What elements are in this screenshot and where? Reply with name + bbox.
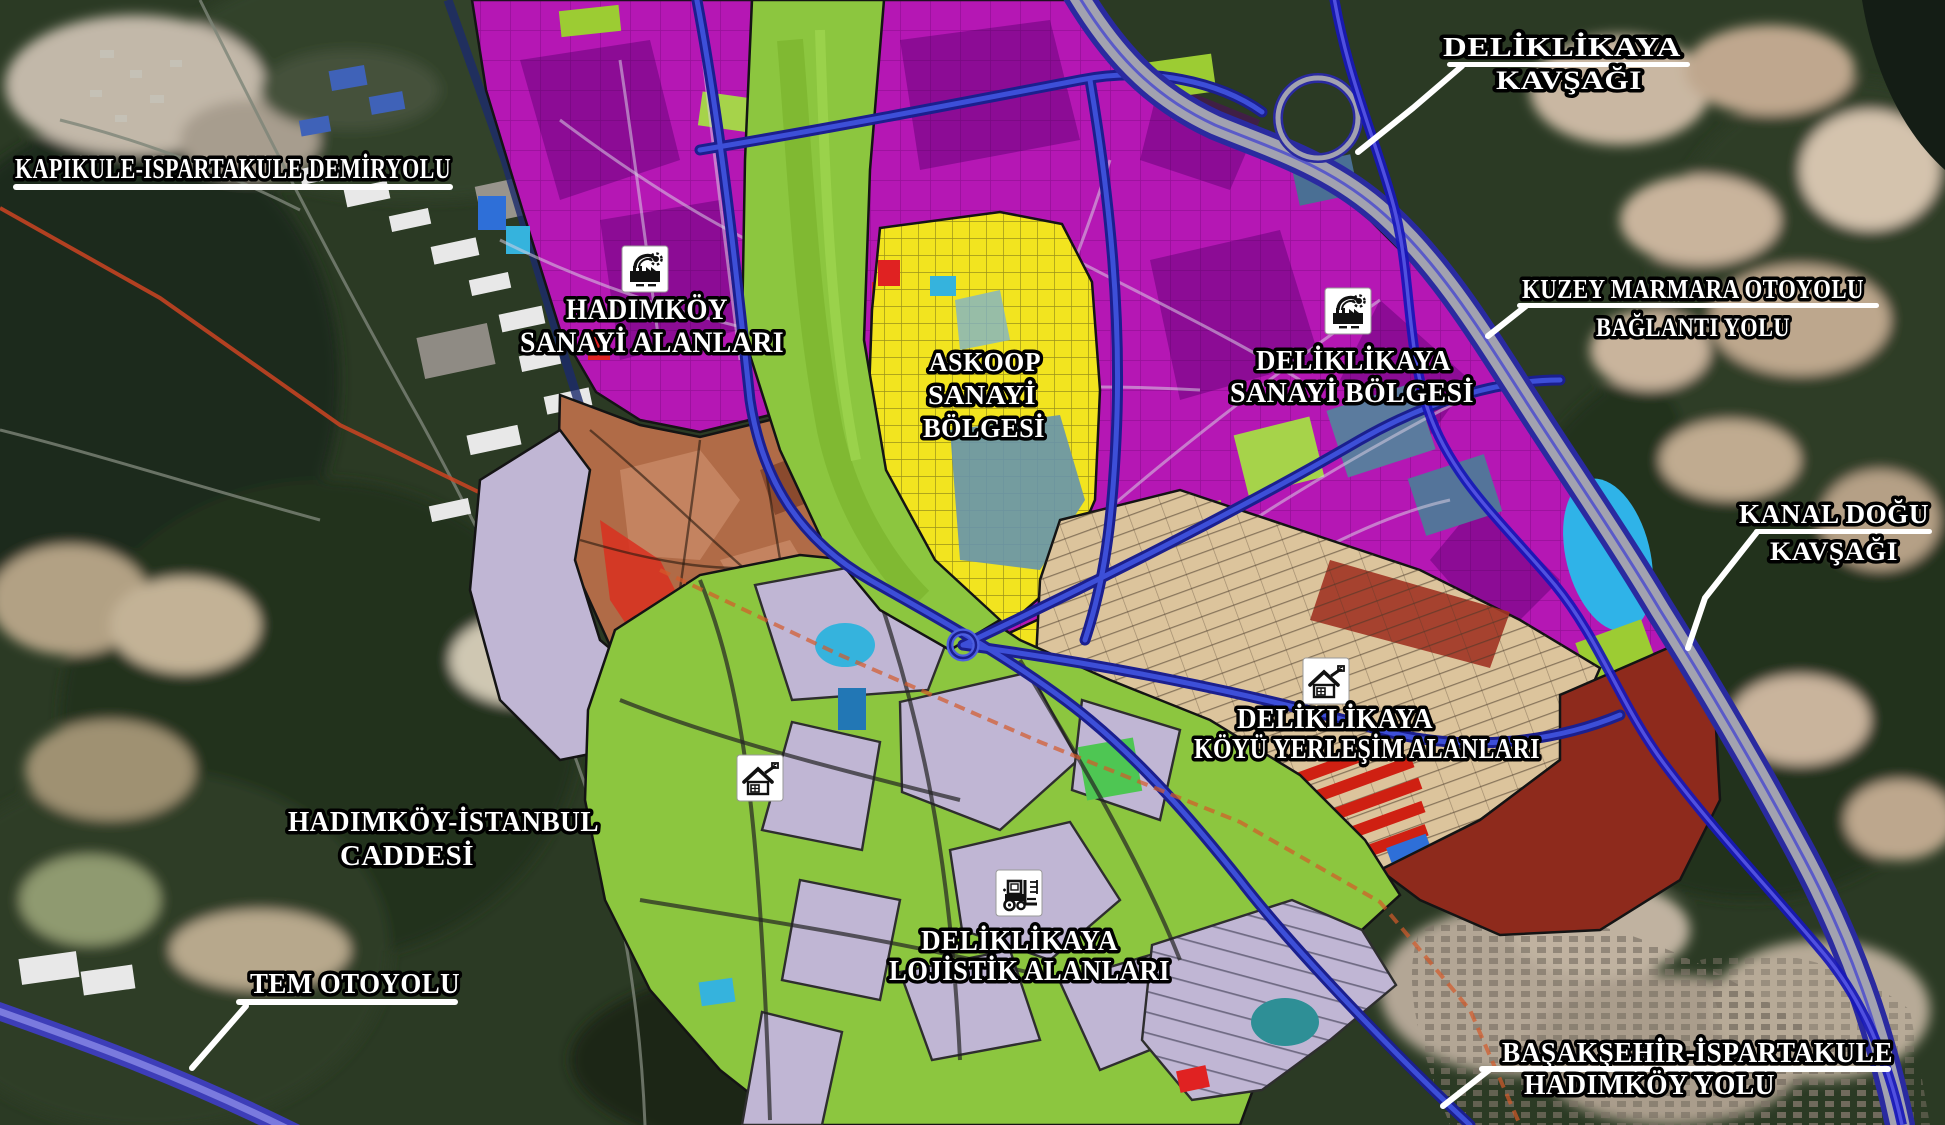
label-text: BÖLGESİ bbox=[923, 413, 1045, 443]
label-underline bbox=[1517, 303, 1879, 308]
label-text: SANAYİ bbox=[928, 380, 1036, 410]
factory-icon bbox=[622, 246, 668, 292]
label-underline bbox=[13, 184, 453, 190]
label-underline bbox=[236, 999, 458, 1005]
label-askoop: ASKOOP SANAYİ BÖLGESİ bbox=[923, 347, 1045, 443]
label-text: HADIMKÖY-İSTANBUL bbox=[288, 807, 599, 838]
label-deliklikaya-sanayi: DELİKLİKAYA SANAYİ BÖLGESİ bbox=[1230, 346, 1474, 409]
label-kapikule-demiryolu: KAPIKULE-ISPARTAKULE DEMİRYOLU bbox=[13, 152, 453, 190]
forklift-icon bbox=[996, 870, 1042, 916]
label-text: HADIMKÖY YOLU bbox=[1524, 1069, 1775, 1101]
label-text: SANAYİ ALANLARI bbox=[520, 326, 784, 359]
label-text: ASKOOP bbox=[929, 347, 1041, 377]
label-text: CADDESİ bbox=[340, 841, 474, 872]
label-text: KAVŞAĞI bbox=[1770, 537, 1898, 566]
label-text: DELİKLİKAYA bbox=[1237, 704, 1433, 735]
label-text: DELİKLİKAYA bbox=[1256, 346, 1451, 377]
label-text: HADIMKÖY bbox=[566, 293, 728, 326]
label-text: KÖYÜ YERLEŞİM ALANLARI bbox=[1194, 734, 1540, 765]
house-icon bbox=[737, 755, 783, 801]
label-text: LOJİSTİK ALANLARI bbox=[889, 956, 1170, 987]
planning-map-canvas: KAPIKULE-ISPARTAKULE DEMİRYOLU DELİKLİKA… bbox=[0, 0, 1945, 1125]
label-text: SANAYİ BÖLGESİ bbox=[1230, 378, 1474, 409]
planning-map-screenshot: KAPIKULE-ISPARTAKULE DEMİRYOLU DELİKLİKA… bbox=[0, 0, 1945, 1125]
label-text: BAŞAKŞEHİR-İSPARTAKULE bbox=[1502, 1036, 1893, 1069]
label-text: DELİKLİKAYA bbox=[1443, 32, 1681, 62]
label-text: KANAL DOĞU bbox=[1739, 499, 1929, 529]
label-text: BAĞLANTI YOLU bbox=[1596, 313, 1790, 342]
label-text: TEM OTOYOLU bbox=[250, 968, 460, 1000]
factory-icon bbox=[1325, 288, 1371, 334]
label-text: KUZEY MARMARA OTOYOLU bbox=[1522, 274, 1864, 304]
label-text: KAPIKULE-ISPARTAKULE DEMİRYOLU bbox=[15, 152, 451, 185]
house-icon bbox=[1303, 658, 1349, 704]
label-text: DELİKLİKAYA bbox=[921, 926, 1118, 957]
label-underline bbox=[1754, 529, 1932, 534]
label-text: KAVŞAĞI bbox=[1496, 66, 1642, 95]
